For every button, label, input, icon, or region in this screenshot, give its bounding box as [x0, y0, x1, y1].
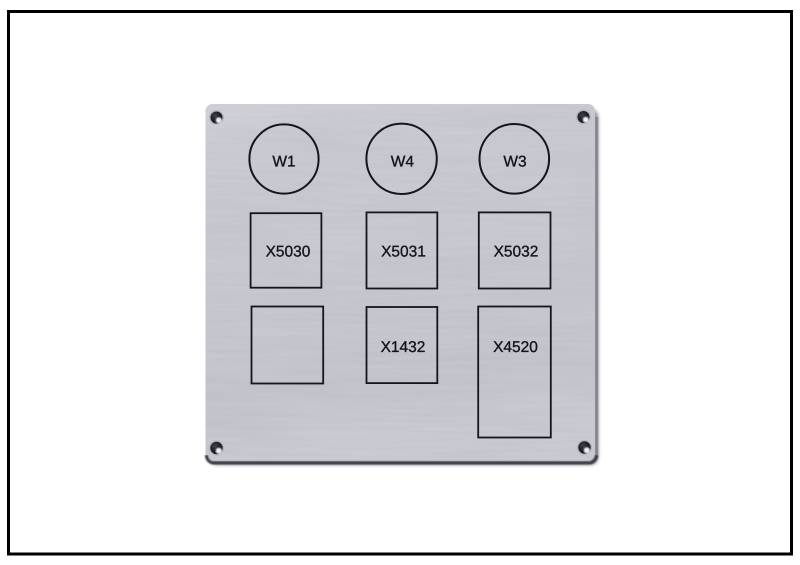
- svg-text:X5031: X5031: [381, 244, 426, 261]
- svg-text:X1432: X1432: [381, 339, 426, 356]
- svg-text:W1: W1: [272, 154, 295, 171]
- svg-text:W3: W3: [503, 154, 526, 171]
- svg-text:X4520: X4520: [493, 339, 538, 356]
- svg-text:W4: W4: [391, 154, 415, 171]
- svg-text:X5032: X5032: [494, 244, 539, 261]
- svg-text:X5030: X5030: [266, 244, 311, 261]
